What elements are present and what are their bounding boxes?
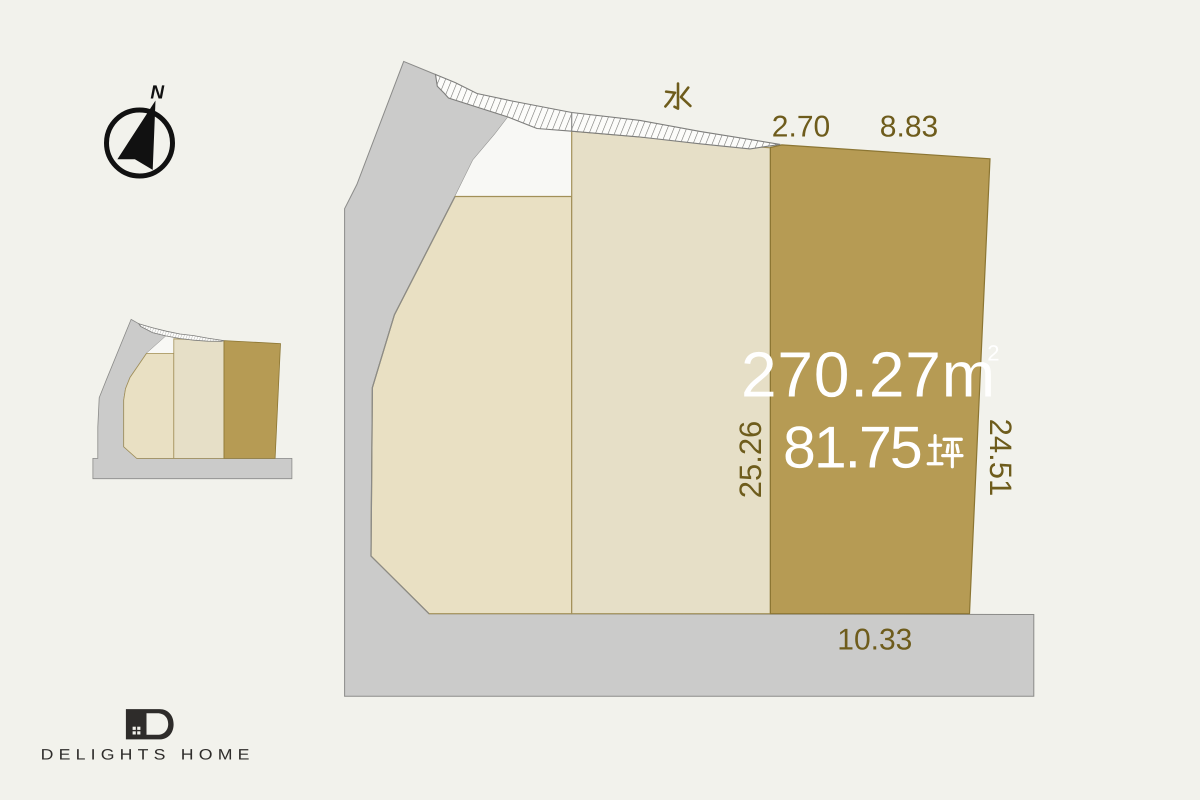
svg-text:25.26: 25.26 [733,421,768,499]
svg-text:N: N [150,82,165,103]
svg-text:2: 2 [987,341,999,366]
svg-text:DELIGHTS HOME: DELIGHTS HOME [41,747,255,764]
svg-text:81.75: 81.75 [783,415,921,481]
svg-text:2.70: 2.70 [772,111,830,144]
svg-text:24.51: 24.51 [983,419,1018,497]
svg-text:270.27m: 270.27m [741,338,995,410]
svg-text:10.33: 10.33 [837,623,912,656]
svg-text:8.83: 8.83 [880,111,938,144]
